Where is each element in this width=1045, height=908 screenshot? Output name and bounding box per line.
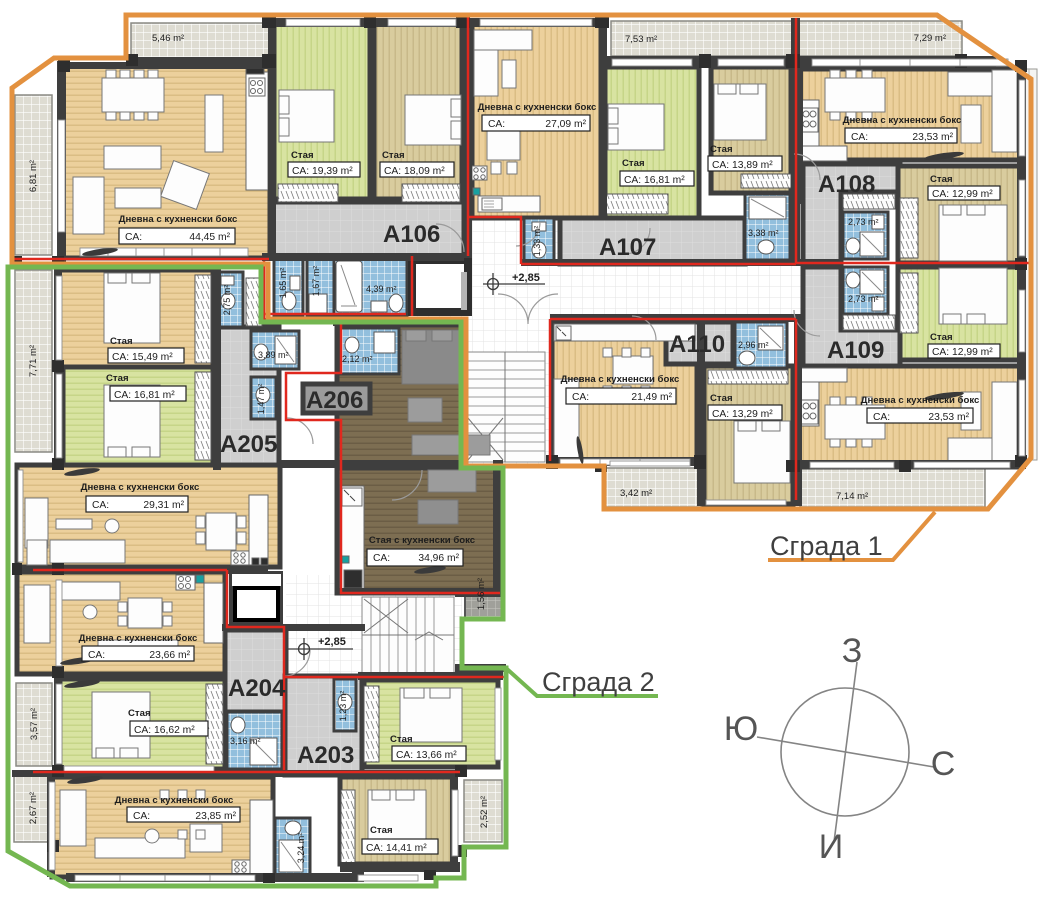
- svg-text:27,09 m²: 27,09 m²: [545, 119, 586, 130]
- svg-text:2,96 m²: 2,96 m²: [738, 340, 769, 350]
- svg-text:CA:: CA:: [133, 811, 150, 822]
- svg-text:CA: 16,81 m²: CA: 16,81 m²: [114, 390, 175, 401]
- svg-text:Стая: Стая: [930, 332, 953, 343]
- svg-text:И: И: [819, 828, 843, 866]
- svg-text:2,67 m²: 2,67 m²: [28, 792, 39, 824]
- svg-text:CA:: CA:: [572, 392, 589, 403]
- svg-text:2,73 m²: 2,73 m²: [848, 217, 879, 227]
- svg-text:Стая: Стая: [370, 825, 393, 836]
- svg-text:7,29 m²: 7,29 m²: [914, 33, 946, 44]
- svg-text:21,49 m²: 21,49 m²: [631, 392, 672, 403]
- svg-text:A108: A108: [818, 171, 875, 198]
- svg-text:Сграда 1: Сграда 1: [770, 531, 883, 561]
- svg-text:4,39 m²: 4,39 m²: [366, 284, 397, 294]
- svg-text:CA: 13,66 m²: CA: 13,66 m²: [396, 750, 457, 761]
- svg-text:CA: 14,41 m²: CA: 14,41 m²: [366, 843, 427, 854]
- svg-text:CA: 16,62 m²: CA: 16,62 m²: [134, 725, 195, 736]
- svg-text:Дневна с кухненски бокс: Дневна с кухненски бокс: [115, 795, 234, 806]
- svg-text:3,42 m²: 3,42 m²: [620, 488, 652, 499]
- svg-text:A106: A106: [383, 221, 440, 248]
- svg-text:Дневна с кухненски бокс: Дневна с кухненски бокс: [843, 115, 962, 126]
- svg-text:7,71 m²: 7,71 m²: [28, 345, 39, 377]
- svg-text:1,47 m²: 1,47 m²: [256, 384, 266, 415]
- svg-text:CA: 13,29 m²: CA: 13,29 m²: [712, 409, 773, 420]
- svg-text:+2,85: +2,85: [318, 636, 346, 648]
- svg-text:2,73 m²: 2,73 m²: [848, 294, 879, 304]
- svg-text:Дневна с кухненски бокс: Дневна с кухненски бокс: [861, 395, 980, 406]
- svg-text:Дневна с кухненски бокс: Дневна с кухненски бокс: [561, 374, 680, 385]
- svg-text:Стая: Стая: [291, 150, 314, 161]
- svg-text:5,46 m²: 5,46 m²: [152, 33, 184, 44]
- svg-text:CA: 12,99 m²: CA: 12,99 m²: [932, 347, 993, 358]
- svg-text:CA: 12,99 m²: CA: 12,99 m²: [932, 189, 993, 200]
- svg-text:Дневна с кухненски бокс: Дневна с кухненски бокс: [79, 633, 198, 644]
- svg-text:1,56 m²: 1,56 m²: [476, 578, 487, 610]
- svg-text:Стая: Стая: [128, 708, 151, 719]
- svg-text:Дневна с кухненски бокс: Дневна с кухненски бокс: [478, 102, 597, 113]
- svg-text:CA:: CA:: [873, 412, 890, 423]
- svg-text:1,33 m²: 1,33 m²: [532, 226, 542, 257]
- svg-text:23,53 m²: 23,53 m²: [912, 132, 953, 143]
- svg-text:CA: 13,89 m²: CA: 13,89 m²: [712, 160, 773, 171]
- svg-text:CA:: CA:: [373, 553, 390, 564]
- svg-text:CA:: CA:: [88, 650, 105, 661]
- svg-text:23,66 m²: 23,66 m²: [149, 650, 190, 661]
- svg-text:A107: A107: [599, 234, 656, 261]
- svg-text:23,85 m²: 23,85 m²: [195, 811, 236, 822]
- svg-text:CA:: CA:: [851, 132, 868, 143]
- svg-text:7,53 m²: 7,53 m²: [625, 34, 657, 45]
- svg-text:Стая: Стая: [930, 174, 953, 185]
- svg-text:Дневна с кухненски бокс: Дневна с кухненски бокс: [119, 214, 238, 225]
- svg-text:CA:: CA:: [125, 232, 142, 243]
- svg-text:Стая: Стая: [106, 373, 129, 384]
- svg-text:Стая: Стая: [710, 393, 733, 404]
- svg-text:Стая с кухненски бокс: Стая с кухненски бокс: [369, 535, 476, 546]
- svg-text:3,24 m²: 3,24 m²: [296, 833, 306, 864]
- svg-text:2,75 m²: 2,75 m²: [222, 285, 232, 316]
- svg-text:Стая: Стая: [390, 734, 413, 745]
- svg-text:1,65 m²: 1,65 m²: [278, 268, 288, 299]
- svg-text:3,16 m²: 3,16 m²: [230, 736, 261, 746]
- svg-text:3,57 m²: 3,57 m²: [29, 708, 40, 740]
- svg-text:3,38 m²: 3,38 m²: [748, 228, 779, 238]
- svg-text:34,96 m²: 34,96 m²: [418, 553, 459, 564]
- svg-text:С: С: [931, 745, 956, 783]
- svg-text:A110: A110: [669, 331, 725, 358]
- svg-text:23,53 m²: 23,53 m²: [928, 412, 969, 423]
- svg-text:Сграда 2: Сграда 2: [542, 667, 655, 697]
- svg-text:7,14 m²: 7,14 m²: [836, 491, 868, 502]
- svg-text:6,81 m²: 6,81 m²: [28, 160, 39, 192]
- svg-text:A205: A205: [220, 431, 277, 458]
- svg-text:CA: 15,49 m²: CA: 15,49 m²: [112, 352, 173, 363]
- svg-text:Дневна с кухненски бокс: Дневна с кухненски бокс: [81, 482, 200, 493]
- svg-text:2,52 m²: 2,52 m²: [479, 796, 490, 828]
- svg-text:1,23 m²: 1,23 m²: [338, 691, 348, 722]
- svg-text:CA:: CA:: [92, 500, 109, 511]
- svg-text:44,45 m²: 44,45 m²: [189, 232, 230, 243]
- svg-text:Стая: Стая: [382, 150, 405, 161]
- svg-text:2,12 m²: 2,12 m²: [342, 354, 373, 364]
- svg-text:A109: A109: [827, 337, 884, 364]
- svg-text:Ю: Ю: [724, 710, 758, 748]
- svg-text:29,31 m²: 29,31 m²: [143, 500, 184, 511]
- svg-text:1,67 m²: 1,67 m²: [311, 266, 321, 297]
- svg-text:Стая: Стая: [110, 336, 133, 347]
- svg-text:CA: 16,81 m²: CA: 16,81 m²: [624, 175, 685, 186]
- svg-text:Стая: Стая: [622, 158, 645, 169]
- svg-text:CA: 19,39 m²: CA: 19,39 m²: [292, 166, 353, 177]
- svg-text:CA:: CA:: [488, 119, 505, 130]
- svg-text:+2,85: +2,85: [512, 272, 540, 284]
- svg-text:A204: A204: [228, 675, 286, 702]
- svg-text:A203: A203: [297, 742, 354, 769]
- svg-text:3,89 m²: 3,89 m²: [258, 350, 289, 360]
- svg-text:Стая: Стая: [710, 144, 733, 155]
- svg-text:A206: A206: [306, 387, 363, 414]
- svg-text:З: З: [842, 632, 863, 670]
- svg-text:CA: 18,09 m²: CA: 18,09 m²: [384, 166, 445, 177]
